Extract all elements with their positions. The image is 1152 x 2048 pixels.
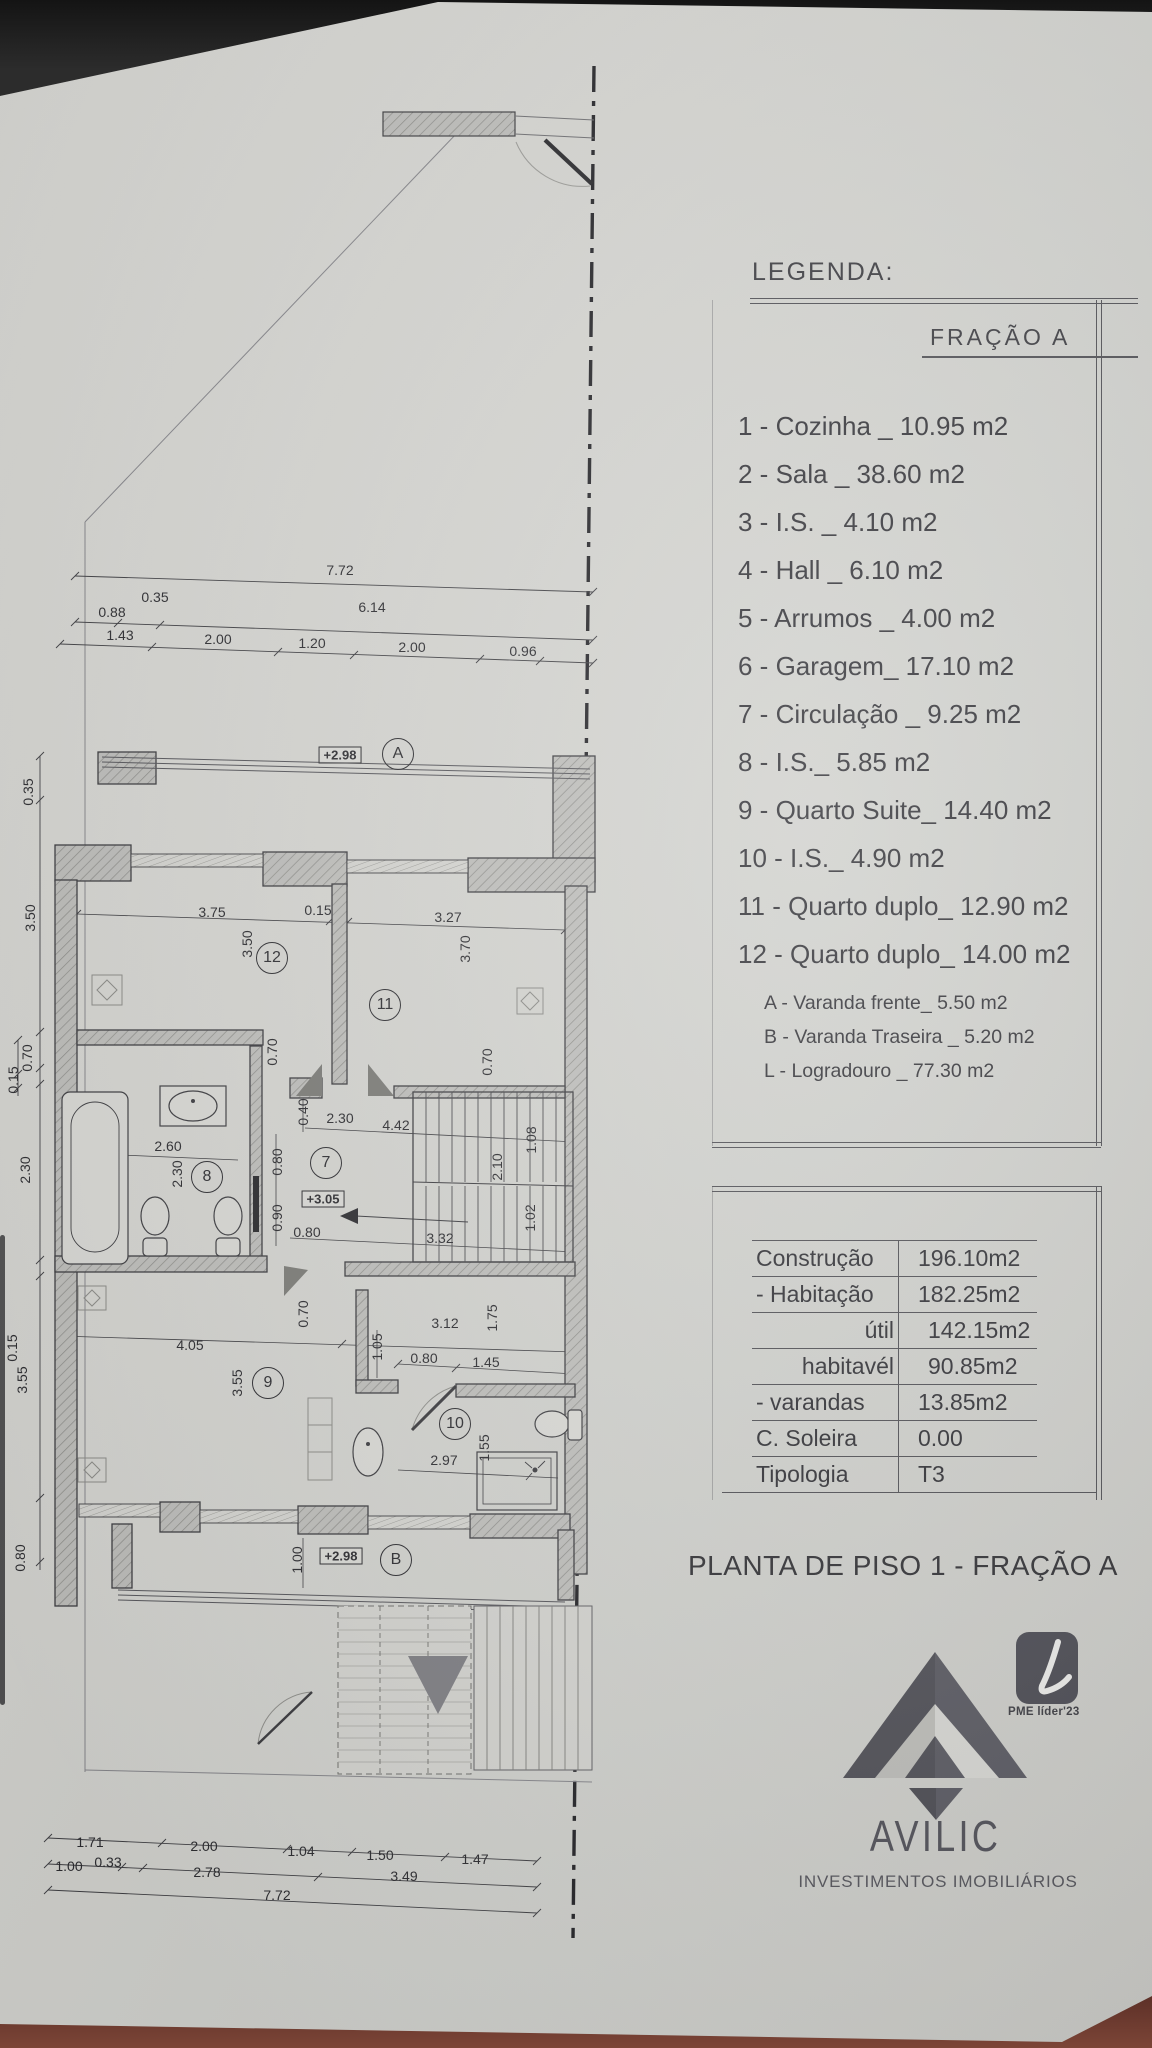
table-rule xyxy=(752,1384,1037,1385)
table-rule xyxy=(752,1276,1037,1277)
table-row: C. Soleira0.00 xyxy=(752,1420,1037,1456)
areas-table: Construção196.10m2 - Habitação182.25m2 ú… xyxy=(752,1240,1037,1492)
legend-item: 8 - I.S._ 5.85 m2 xyxy=(738,738,1070,786)
pme-badge-label: PME líder'23 xyxy=(1008,1706,1094,1718)
page-title: PLANTA DE PISO 1 - FRAÇÃO A xyxy=(688,1550,1118,1582)
logo-name: AVILIC xyxy=(847,1812,1023,1862)
table-rule xyxy=(752,1420,1037,1421)
avilic-logo-mark xyxy=(835,1648,1035,1828)
table-rule xyxy=(752,1348,1037,1349)
legend-item: 6 - Garagem_ 17.10 m2 xyxy=(738,642,1070,690)
table-rule xyxy=(752,1456,1037,1457)
legend-subitem: L - Logradouro _ 77.30 m2 xyxy=(764,1054,1035,1088)
table-rule xyxy=(752,1240,1037,1241)
table-row: útil142.15m2 xyxy=(752,1312,1037,1348)
areas-box-right-border xyxy=(1096,1186,1102,1500)
table-row: Construção196.10m2 xyxy=(752,1240,1037,1276)
walls xyxy=(55,752,595,1606)
fraction-underline xyxy=(922,356,1138,358)
table-row: - Habitação182.25m2 xyxy=(752,1276,1037,1312)
table-row: TipologiaT3 xyxy=(752,1456,1037,1492)
legend-item: 12 - Quarto duplo_ 14.00 m2 xyxy=(738,930,1070,978)
legend-item: 3 - I.S. _ 4.10 m2 xyxy=(738,498,1070,546)
legend-subitems: A - Varanda frente_ 5.50 m2 B - Varanda … xyxy=(764,986,1035,1088)
areas-box-left-border xyxy=(712,1186,713,1500)
areas-box-top-border xyxy=(712,1186,1101,1192)
legend-box-left-border xyxy=(712,300,713,1146)
floor-plan-drawing xyxy=(0,0,640,1960)
photo-of-floor-plan-sheet: 7.720.880.356.141.432.001.202.000.960.35… xyxy=(0,0,1152,2048)
legend-box-bottom-border xyxy=(712,1142,1101,1148)
table-rule xyxy=(722,1492,1097,1493)
legend-item: 1 - Cozinha _ 10.95 m2 xyxy=(738,402,1070,450)
legend-item: 2 - Sala _ 38.60 m2 xyxy=(738,450,1070,498)
legend-item: 4 - Hall _ 6.10 m2 xyxy=(738,546,1070,594)
pme-badge-l-icon xyxy=(1016,1632,1078,1704)
legend-title: LEGENDA: xyxy=(752,258,894,287)
photo-edge-shadow xyxy=(0,1235,5,1705)
table-rule xyxy=(752,1312,1037,1313)
legend-item: 10 - I.S._ 4.90 m2 xyxy=(738,834,1070,882)
table-column-divider xyxy=(898,1240,899,1492)
logo-subtitle: INVESTIMENTOS IMOBILIÁRIOS xyxy=(788,1872,1088,1892)
legend-item: 11 - Quarto duplo_ 12.90 m2 xyxy=(738,882,1070,930)
outdoor-area xyxy=(85,1606,592,1782)
legend-item: 5 - Arrumos _ 4.00 m2 xyxy=(738,594,1070,642)
furniture xyxy=(75,862,545,1452)
fraction-title: FRAÇÃO A xyxy=(930,324,1070,351)
windows xyxy=(79,854,470,1529)
legend-subitem: B - Varanda Traseira _ 5.20 m2 xyxy=(764,1020,1035,1054)
table-row: habitavél90.85m2 xyxy=(752,1348,1037,1384)
legend-item: 9 - Quarto Suite_ 14.40 m2 xyxy=(738,786,1070,834)
legend-box-right-border xyxy=(1096,300,1102,1146)
legend-items: 1 - Cozinha _ 10.95 m2 2 - Sala _ 38.60 … xyxy=(738,402,1070,978)
pme-lider-badge xyxy=(1016,1632,1078,1704)
table-row: - varandas13.85m2 xyxy=(752,1384,1037,1420)
legend-subitem: A - Varanda frente_ 5.50 m2 xyxy=(764,986,1035,1020)
stairs xyxy=(340,1092,573,1262)
paper-sheet: 7.720.880.356.141.432.001.202.000.960.35… xyxy=(0,0,1152,2048)
legend-title-underline xyxy=(750,298,1138,304)
legend-item: 7 - Circulação _ 9.25 m2 xyxy=(738,690,1070,738)
